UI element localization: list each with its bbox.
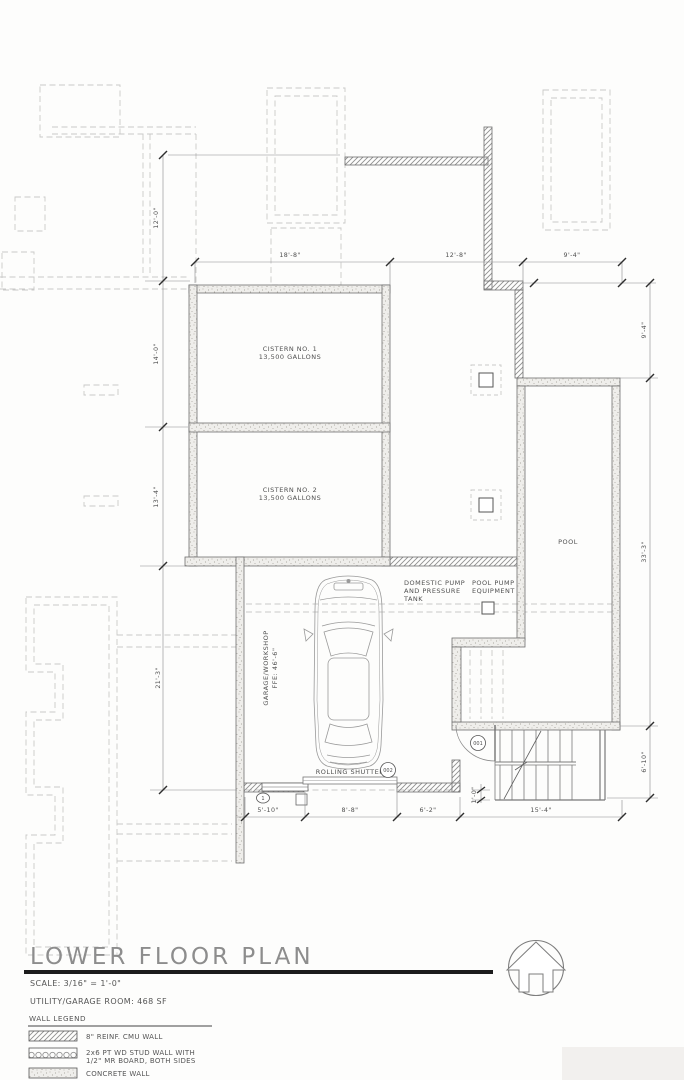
title-block: LOWER FLOOR PLAN SCALE: 3/16" = 1'-0" UT… (24, 944, 493, 1078)
dim-right-0: 9'-4" (641, 322, 648, 339)
dim-top-2: 9'-4" (564, 252, 581, 259)
legend-swatch-concrete (29, 1068, 77, 1078)
legend-stud-label-1: 2x6 PT WD STUD WALL WITH (86, 1049, 195, 1057)
concrete-walls (185, 285, 620, 863)
dim-left-0: 12'-0" (153, 207, 160, 228)
door-tag-001: 001 (473, 741, 483, 747)
legend-stud-label-2: 1/2" MR BOARD, BOTH SIDES (86, 1057, 196, 1065)
floor-plan-page: 18'-8" 12'-8" 9'-4" 12'-0" 14'-0" 13'-4"… (0, 0, 684, 1080)
window-tag: 1 (261, 796, 264, 802)
columns (471, 365, 501, 614)
dim-bottom-3: 15'-4" (530, 807, 551, 814)
dim-right-2: 6'-10" (641, 751, 648, 772)
column-icon (482, 602, 494, 614)
dim-bottom-1: 8'-8" (342, 807, 359, 814)
legend-title: WALL LEGEND (29, 1014, 86, 1023)
legend-concrete-label: CONCRETE WALL (86, 1070, 150, 1078)
dim-left-3: 21'-3" (155, 667, 162, 688)
car-icon (304, 576, 393, 769)
north-arrow-icon (507, 941, 565, 996)
floor-plan-drawing: 18'-8" 12'-8" 9'-4" 12'-0" 14'-0" 13'-4"… (0, 0, 684, 1080)
scan-artifact (562, 1047, 684, 1080)
cistern2-name: CISTERN NO. 2 (263, 486, 318, 494)
area-note: UTILITY/GARAGE ROOM: 468 SF (30, 997, 167, 1006)
domestic-pump-2: AND PRESSURE (404, 587, 461, 595)
garage-ffe: FFE: 46'-6" (271, 648, 279, 689)
pool-pump-2: EQUIPMENT (472, 587, 515, 595)
column-icon (479, 498, 493, 512)
door-tag-002: 002 (383, 768, 393, 774)
dim-top-0: 18'-8" (279, 252, 300, 259)
mirror-left (304, 629, 313, 641)
dim-left-1: 14'-0" (153, 343, 160, 364)
legend-swatch-stud (29, 1048, 77, 1058)
column-icon (479, 373, 493, 387)
domestic-pump-1: DOMESTIC PUMP (404, 579, 465, 587)
legend-cmu-label: 8" REINF. CMU WALL (86, 1033, 163, 1041)
cistern1-name: CISTERN NO. 1 (263, 345, 318, 353)
pool-label: POOL (558, 538, 578, 546)
drawing-title: LOWER FLOOR PLAN (30, 944, 314, 970)
garage-label: GARAGE/WORKSHOP (262, 630, 270, 705)
cistern2-capacity: 13,500 GALLONS (259, 494, 321, 502)
dim-bottom-0: 5'-10" (257, 807, 278, 814)
dim-top-1: 12'-8" (445, 252, 466, 259)
cistern1-capacity: 13,500 GALLONS (259, 353, 321, 361)
dim-right-1: 33'-3" (641, 541, 648, 562)
domestic-pump-3: TANK (403, 595, 423, 603)
pier-icon (296, 794, 307, 805)
dim-bottom-2: 6'-2" (420, 807, 437, 814)
mirror-right (384, 629, 393, 641)
dim-jamb: 1'-0" (471, 787, 478, 804)
legend-swatch-cmu (29, 1031, 77, 1041)
dim-left-2: 13'-4" (153, 486, 160, 507)
scale-note: SCALE: 3/16" = 1'-0" (30, 979, 121, 988)
rolling-shutter-label: ROLLING SHUTTER (316, 768, 384, 776)
stairs (495, 730, 605, 800)
pool-pump-1: POOL PUMP (472, 579, 515, 587)
title-rule (24, 970, 493, 974)
